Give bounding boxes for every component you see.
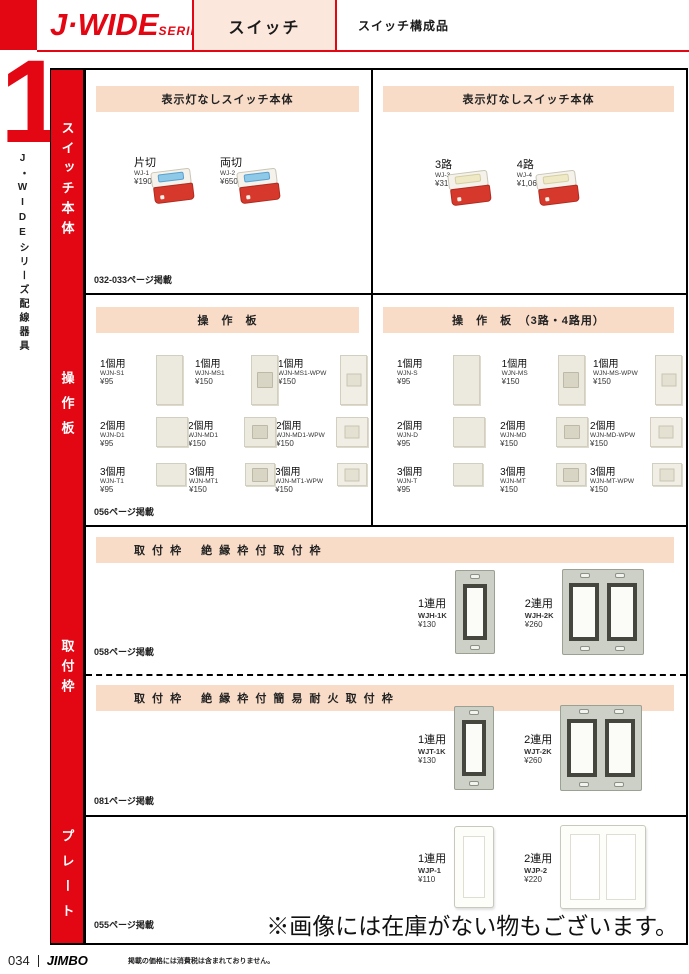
product-price: ¥150 xyxy=(502,377,554,386)
product-item: 3個用WJN-MT-WPW¥150 xyxy=(590,463,682,494)
product-name: 3個用 xyxy=(189,463,241,478)
product-item: 1個用WJN-MS-WPW¥150 xyxy=(593,355,682,405)
plate-product-image xyxy=(156,463,186,486)
product-name: 1個用 xyxy=(397,355,449,370)
series-vertical-text: J・WIDEシリーズ配線器具 xyxy=(15,153,30,354)
product-code: WJN-MS-WPW xyxy=(593,370,651,377)
category-subtitle: スイッチ構成品 xyxy=(358,0,449,51)
category-tab-label: スイッチ xyxy=(228,14,300,38)
product-code: WJN-MD xyxy=(500,432,552,439)
stock-notice-text: ※画像には在庫がない物もございます。 xyxy=(266,907,678,941)
product-row: 1個用WJN-S1¥95 1個用WJN-MS1¥150 1個用WJN-MS1-W… xyxy=(100,355,367,405)
plate-product-image xyxy=(453,417,485,447)
sidebar-section-switch-body: スイッチ本体 xyxy=(50,68,85,294)
category-tab: スイッチ xyxy=(192,0,337,51)
product-code: WJN-D xyxy=(397,432,449,439)
product-name: 2連用 xyxy=(524,850,552,866)
product-price: ¥150 xyxy=(593,377,651,386)
content-frame: 表示灯なしスイッチ本体 片切 WJ-1 ¥190 両切 WJ-2 xyxy=(84,68,688,945)
plate-product-image xyxy=(245,463,275,486)
sidebar-label: 取付枠 xyxy=(58,639,77,699)
product-name: 2個用 xyxy=(590,417,646,432)
product-name: 3路 xyxy=(435,156,453,172)
product-name: 1個用 xyxy=(195,355,247,370)
plate-product-image xyxy=(156,355,183,405)
product-price: ¥150 xyxy=(500,439,552,448)
page-reference-note: 081ページ掲載 xyxy=(94,794,154,807)
switch-body-right-panel: 表示灯なしスイッチ本体 3路 WJ-3 ¥310 4路 WJ-4 xyxy=(373,70,686,293)
product-code: WJN-MS1 xyxy=(195,370,247,377)
plate-product-image xyxy=(650,417,682,447)
product-code: WJT-2K xyxy=(524,747,552,756)
product-item: 1個用WJN-MS1-WPW¥150 xyxy=(278,355,367,405)
plate-product-image xyxy=(336,417,368,447)
panel-banner: 表示灯なしスイッチ本体 xyxy=(96,86,359,112)
page-footer: 034 JIMBO 掲載の価格には消費税は含まれておりません。 xyxy=(0,947,689,974)
product-name: 1個用 xyxy=(100,355,152,370)
product-group: 3路 WJ-3 ¥310 4路 WJ-4 ¥1,060 xyxy=(435,156,579,206)
product-item: 3路 WJ-3 ¥310 xyxy=(435,156,491,206)
product-code: WJN-MD-WPW xyxy=(590,432,646,439)
product-code: WJN-S xyxy=(397,370,449,377)
product-label: 2連用 WJH-2K ¥260 xyxy=(525,595,554,629)
product-price: ¥150 xyxy=(188,439,240,448)
product-code: WJP-2 xyxy=(524,866,552,875)
product-label: 1連用 WJT-1K ¥130 xyxy=(418,731,446,765)
section-mounting-frame: 取 付 枠 絶 縁 枠 付 取 付 枠 1連用 WJH-1K ¥130 2連用 … xyxy=(86,527,686,817)
product-code: WJN-MT-WPW xyxy=(590,478,648,485)
product-code: WJN-MS xyxy=(502,370,554,377)
product-name: 1連用 xyxy=(418,850,446,866)
product-item: 3個用WJN-MT¥150 xyxy=(500,463,590,494)
panel-banner: 操 作 板 xyxy=(96,307,359,333)
product-name: 2個用 xyxy=(276,417,332,432)
product-name: 3個用 xyxy=(590,463,648,478)
product-name: 1個用 xyxy=(593,355,651,370)
product-name: 3個用 xyxy=(500,463,552,478)
product-item: 2個用WJN-D¥95 xyxy=(397,417,500,448)
page-number: 034 xyxy=(8,953,30,968)
panel-banner: 取 付 枠 絶 縁 枠 付 取 付 枠 xyxy=(96,537,674,563)
product-name: 2連用 xyxy=(525,595,554,611)
product-label: 2連用 WJT-2K ¥260 xyxy=(524,731,552,765)
plate-product-image xyxy=(244,417,276,447)
switch-product-image xyxy=(533,167,581,208)
product-name: 2個用 xyxy=(100,417,152,432)
frame-product-image xyxy=(454,706,494,790)
plate-product-image xyxy=(556,463,586,486)
sidebar-label: プレート xyxy=(58,829,77,929)
product-code: WJN-T1 xyxy=(100,478,152,485)
plate-product-image xyxy=(340,355,367,405)
plate-product-image xyxy=(560,825,646,909)
page-reference-note: 058ページ掲載 xyxy=(94,645,154,658)
product-row: 3個用WJN-T¥95 3個用WJN-MT¥150 3個用WJN-MT-WPW¥… xyxy=(397,463,682,494)
product-price: ¥95 xyxy=(397,485,449,494)
page-reference-note: 055ページ掲載 xyxy=(94,918,154,931)
product-code: WJP-1 xyxy=(418,866,446,875)
frame-product-image xyxy=(560,705,642,791)
product-item: 2個用WJN-MD¥150 xyxy=(500,417,590,448)
product-price: ¥95 xyxy=(100,439,152,448)
product-price: ¥220 xyxy=(524,875,552,884)
product-price: ¥95 xyxy=(397,377,449,386)
operation-board-right-panel: 操 作 板 （3路・4路用） 1個用WJN-S¥95 1個用WJN-MS¥150… xyxy=(373,295,686,525)
product-item: 1個用WJN-S1¥95 xyxy=(100,355,195,405)
switch-product-image xyxy=(445,167,493,208)
product-item: 4路 WJ-4 ¥1,060 xyxy=(517,156,579,206)
dashed-divider xyxy=(86,674,686,676)
frame-product-image xyxy=(455,570,495,654)
page-reference-note: 032-033ページ掲載 xyxy=(94,273,172,286)
product-name: 2個用 xyxy=(188,417,240,432)
product-price: ¥150 xyxy=(590,439,646,448)
product-price: ¥150 xyxy=(195,377,247,386)
product-name: 片切 xyxy=(134,154,156,170)
sidebar-section-mounting-frame: 取付枠 xyxy=(50,524,85,816)
product-name: 1個用 xyxy=(502,355,554,370)
product-price: ¥260 xyxy=(524,756,552,765)
product-name: 3個用 xyxy=(275,463,333,478)
product-name: 2連用 xyxy=(524,731,552,747)
product-name: 4路 xyxy=(517,156,541,172)
product-price: ¥150 xyxy=(189,485,241,494)
plate-product-image xyxy=(652,463,682,486)
product-price: ¥260 xyxy=(525,620,554,629)
plate-product-image xyxy=(453,463,483,486)
product-item: 3個用WJN-T¥95 xyxy=(397,463,500,494)
product-item: 3個用WJN-MT1¥150 xyxy=(189,463,275,494)
header-rule xyxy=(37,50,689,52)
product-item: 3個用WJN-MT1-WPW¥150 xyxy=(275,463,367,494)
product-row: 2個用WJN-D¥95 2個用WJN-MD¥150 2個用WJN-MD-WPW¥… xyxy=(397,417,682,448)
section-plate: 1連用 WJP-1 ¥110 2連用 WJP-2 ¥220 055ページ掲載 ※… xyxy=(86,817,686,943)
sidebar-section-plate: プレート xyxy=(50,814,85,945)
footer-divider xyxy=(38,955,39,967)
product-price: ¥150 xyxy=(275,485,333,494)
plate-product-image xyxy=(453,355,480,405)
frame-product-image xyxy=(562,569,644,655)
operation-board-left-panel: 操 作 板 1個用WJN-S1¥95 1個用WJN-MS1¥150 1個用WJN… xyxy=(86,295,373,525)
product-row: 2個用WJN-D1¥95 2個用WJN-MD1¥150 2個用WJN-MD1-W… xyxy=(100,417,367,448)
product-item: 片切 WJ-1 ¥190 xyxy=(134,154,194,204)
product-label: 2連用 WJP-2 ¥220 xyxy=(524,850,552,884)
product-price: ¥150 xyxy=(500,485,552,494)
product-code: WJN-MT1 xyxy=(189,478,241,485)
panel-banner: 操 作 板 （3路・4路用） xyxy=(383,307,674,333)
product-code: WJN-MT xyxy=(500,478,552,485)
product-group: 1連用 WJH-1K ¥130 2連用 WJH-2K ¥260 xyxy=(418,569,644,655)
product-name: 1連用 xyxy=(418,595,447,611)
product-name: 3個用 xyxy=(397,463,449,478)
page-reference-note: 056ページ掲載 xyxy=(94,505,154,518)
product-group: 1連用 WJT-1K ¥130 2連用 WJT-2K ¥260 xyxy=(418,705,642,791)
product-item: 2個用WJN-MD1-WPW¥150 xyxy=(276,417,368,448)
product-code: WJH-1K xyxy=(418,611,447,620)
switch-product-image xyxy=(234,165,282,206)
product-code: WJN-MD1 xyxy=(188,432,240,439)
product-price: ¥110 xyxy=(418,875,446,884)
product-price: ¥95 xyxy=(397,439,449,448)
product-label: 1連用 WJH-1K ¥130 xyxy=(418,595,447,629)
plate-product-image xyxy=(556,417,588,447)
product-item: 1個用WJN-MS¥150 xyxy=(502,355,593,405)
product-code: WJN-MS1-WPW xyxy=(278,370,336,377)
catalog-page: J·WIDESERIES スイッチ スイッチ構成品 1 J・WIDEシリーズ配線… xyxy=(0,0,689,974)
product-code: WJT-1K xyxy=(418,747,446,756)
product-item: 3個用WJN-T1¥95 xyxy=(100,463,189,494)
product-group: 1連用 WJP-1 ¥110 2連用 WJP-2 ¥220 xyxy=(418,825,646,909)
plate-product-image xyxy=(337,463,367,486)
product-item: 両切 WJ-2 ¥650 xyxy=(220,154,280,204)
product-price: ¥130 xyxy=(418,756,446,765)
product-price: ¥95 xyxy=(100,485,152,494)
product-code: WJN-T xyxy=(397,478,449,485)
product-name: 2個用 xyxy=(500,417,552,432)
sidebar-section-operation-board: 操作板 xyxy=(50,292,85,526)
sidebar-label: 操作板 xyxy=(58,371,77,446)
plate-product-image xyxy=(251,355,278,405)
product-name: 3個用 xyxy=(100,463,152,478)
product-item: 2個用WJN-D1¥95 xyxy=(100,417,188,448)
plate-product-image xyxy=(655,355,682,405)
tax-note: 掲載の価格には消費税は含まれておりません。 xyxy=(128,956,274,966)
jwide-logo: J·WIDESERIES xyxy=(50,7,209,43)
product-price: ¥95 xyxy=(100,377,152,386)
product-price: ¥150 xyxy=(276,439,332,448)
product-code: WJN-S1 xyxy=(100,370,152,377)
plate-product-image xyxy=(558,355,585,405)
product-label: 1連用 WJP-1 ¥110 xyxy=(418,850,446,884)
product-item: 1個用WJN-MS1¥150 xyxy=(195,355,278,405)
plate-product-image xyxy=(454,826,494,908)
logo-main-text: J·WIDE xyxy=(50,7,159,42)
product-name: 2個用 xyxy=(397,417,449,432)
product-price: ¥150 xyxy=(590,485,648,494)
chapter-number: 1 xyxy=(0,46,46,158)
product-price: ¥130 xyxy=(418,620,447,629)
product-item: 1個用WJN-S¥95 xyxy=(397,355,502,405)
product-name: 1連用 xyxy=(418,731,446,747)
product-code: WJN-MD1-WPW xyxy=(276,432,332,439)
product-group: 片切 WJ-1 ¥190 両切 WJ-2 ¥650 xyxy=(134,154,280,204)
section-switch-body: 表示灯なしスイッチ本体 片切 WJ-1 ¥190 両切 WJ-2 xyxy=(86,70,686,295)
product-code: WJN-MT1-WPW xyxy=(275,478,333,485)
panel-banner: 表示灯なしスイッチ本体 xyxy=(383,86,674,112)
product-price: ¥150 xyxy=(278,377,336,386)
section-operation-board: 操 作 板 1個用WJN-S1¥95 1個用WJN-MS1¥150 1個用WJN… xyxy=(86,295,686,527)
product-code: WJH-2K xyxy=(525,611,554,620)
product-item: 2個用WJN-MD-WPW¥150 xyxy=(590,417,682,448)
sidebar-label: スイッチ本体 xyxy=(58,121,77,241)
product-name: 両切 xyxy=(220,154,242,170)
product-code: WJN-D1 xyxy=(100,432,152,439)
plate-product-image xyxy=(156,417,188,447)
product-row: 3個用WJN-T1¥95 3個用WJN-MT1¥150 3個用WJN-MT1-W… xyxy=(100,463,367,494)
product-name: 1個用 xyxy=(278,355,336,370)
product-row: 1個用WJN-S¥95 1個用WJN-MS¥150 1個用WJN-MS-WPW¥… xyxy=(397,355,682,405)
jimbo-logo: JIMBO xyxy=(47,953,88,968)
switch-body-left-panel: 表示灯なしスイッチ本体 片切 WJ-1 ¥190 両切 WJ-2 xyxy=(86,70,373,293)
switch-product-image xyxy=(148,165,196,206)
product-item: 2個用WJN-MD1¥150 xyxy=(188,417,276,448)
